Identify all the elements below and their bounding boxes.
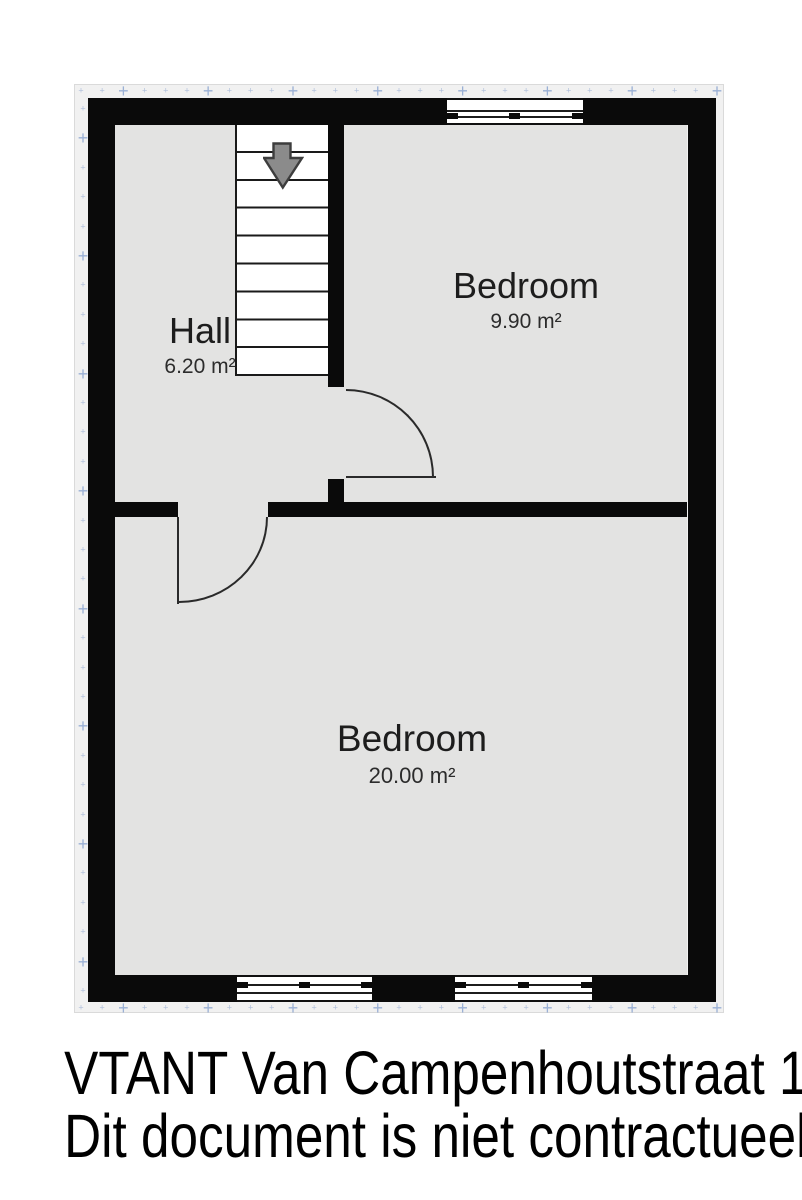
- window-bottom-right: [455, 975, 592, 1002]
- window-mullion-tick: [299, 982, 310, 988]
- window-glass-line: [237, 992, 372, 994]
- room-area: 20.00 m²: [337, 765, 487, 787]
- grid-marker: +: [269, 1004, 274, 1013]
- grid-marker: +: [80, 516, 85, 525]
- grid-marker: +: [80, 340, 85, 349]
- grid-marker: +: [80, 898, 85, 907]
- grid-marker: +: [227, 87, 232, 96]
- window-glass-line: [447, 110, 583, 112]
- wall-top-left: [88, 98, 447, 125]
- grid-marker: +: [80, 781, 85, 790]
- window-jamb-tick: [361, 982, 372, 988]
- grid-marker: +: [672, 1004, 677, 1013]
- caption-disclaimer: Dit document is niet contractueel: [64, 1105, 738, 1168]
- grid-marker: +: [693, 1004, 698, 1013]
- grid-marker: +: [78, 365, 89, 383]
- grid-marker: +: [78, 247, 89, 265]
- grid-marker: +: [80, 193, 85, 202]
- caption-address: VTANT Van Campenhoutstraat 13: [64, 1042, 738, 1105]
- grid-marker: +: [80, 546, 85, 555]
- grid-marker: +: [396, 1004, 401, 1013]
- grid-marker: +: [78, 129, 89, 147]
- grid-marker: +: [693, 87, 698, 96]
- grid-marker: +: [184, 87, 189, 96]
- grid-marker: +: [80, 575, 85, 584]
- wall-divider-left: [115, 502, 178, 517]
- grid-marker: +: [80, 634, 85, 643]
- grid-marker: +: [80, 751, 85, 760]
- grid-marker: +: [78, 1004, 83, 1013]
- grid-marker: +: [418, 1004, 423, 1013]
- grid-marker: +: [80, 222, 85, 231]
- room-name: Bedroom: [337, 720, 487, 757]
- caption: VTANT Van Campenhoutstraat 13 Dit docume…: [0, 1042, 802, 1169]
- grid-marker: +: [80, 928, 85, 937]
- grid-marker: +: [78, 600, 89, 618]
- grid-marker: +: [80, 810, 85, 819]
- window-jamb-tick: [237, 982, 248, 988]
- grid-marker: +: [333, 1004, 338, 1013]
- grid-marker: +: [354, 1004, 359, 1013]
- grid-marker: +: [587, 1004, 592, 1013]
- wall-divider-right: [268, 502, 687, 517]
- room-name: Bedroom: [453, 268, 599, 304]
- wall-bottom-right: [592, 975, 716, 1002]
- grid-marker: +: [312, 1004, 317, 1013]
- grid-marker: +: [184, 1004, 189, 1013]
- grid-marker: +: [396, 87, 401, 96]
- window-jamb-tick: [447, 113, 458, 119]
- room-name: Hall: [164, 313, 235, 349]
- grid-marker: +: [672, 87, 677, 96]
- window-jamb-tick: [581, 982, 592, 988]
- grid-marker: +: [80, 987, 85, 996]
- grid-marker: +: [78, 835, 89, 853]
- room-label-bedroom-top: Bedroom 9.90 m²: [453, 268, 599, 332]
- grid-marker: +: [651, 1004, 656, 1013]
- grid-marker: +: [587, 87, 592, 96]
- grid-marker: +: [80, 428, 85, 437]
- grid-marker: +: [248, 87, 253, 96]
- grid-marker: +: [481, 87, 486, 96]
- room-area: 6.20 m²: [164, 356, 235, 377]
- grid-marker: +: [80, 163, 85, 172]
- grid-marker: +: [142, 1004, 147, 1013]
- window-bottom-left: [237, 975, 372, 1002]
- grid-marker: +: [80, 105, 85, 114]
- grid-marker: +: [80, 310, 85, 319]
- room-label-bedroom-bottom: Bedroom 20.00 m²: [337, 720, 487, 787]
- grid-marker: +: [78, 717, 89, 735]
- wall-stairs-right: [328, 125, 344, 387]
- window-mullion-tick: [509, 113, 520, 119]
- grid-marker: +: [418, 87, 423, 96]
- window-glass-line: [455, 992, 592, 994]
- grid-marker: +: [651, 87, 656, 96]
- grid-marker: +: [227, 1004, 232, 1013]
- wall-bottom-left: [88, 975, 237, 1002]
- window-jamb-tick: [572, 113, 583, 119]
- grid-marker: +: [566, 87, 571, 96]
- grid-marker: +: [608, 87, 613, 96]
- grid-marker: +: [142, 87, 147, 96]
- grid-marker: +: [312, 87, 317, 96]
- window-top: [447, 98, 583, 125]
- grid-marker: +: [566, 1004, 571, 1013]
- wall-left: [88, 98, 115, 1002]
- door-leaf-bedroom-large: [177, 517, 179, 604]
- window-jamb-tick: [455, 982, 466, 988]
- grid-marker: +: [80, 457, 85, 466]
- grid-marker: +: [481, 1004, 486, 1013]
- grid-marker: +: [333, 87, 338, 96]
- grid-marker: +: [80, 869, 85, 878]
- grid-marker: +: [78, 953, 89, 971]
- stairs-down-arrow-icon: [263, 142, 304, 190]
- grid-marker: +: [502, 1004, 507, 1013]
- grid-marker: +: [248, 1004, 253, 1013]
- grid-marker: +: [608, 1004, 613, 1013]
- grid-marker: +: [80, 281, 85, 290]
- grid-marker: +: [80, 663, 85, 672]
- grid-marker: +: [354, 87, 359, 96]
- wall-right: [688, 98, 716, 1002]
- room-area: 9.90 m²: [453, 311, 599, 332]
- grid-marker: +: [524, 1004, 529, 1013]
- grid-marker: +: [163, 87, 168, 96]
- room-label-hall: Hall 6.20 m²: [164, 313, 235, 377]
- grid-marker: +: [163, 1004, 168, 1013]
- grid-marker: +: [439, 87, 444, 96]
- grid-marker: +: [524, 87, 529, 96]
- floorplan-page: ++++++++++++++++++++++++++++++++++++++++…: [0, 0, 802, 1200]
- grid-marker: +: [100, 87, 105, 96]
- grid-marker: +: [78, 87, 83, 96]
- grid-marker: +: [78, 482, 89, 500]
- wall-bottom-middle: [372, 975, 455, 1002]
- grid-marker: +: [80, 399, 85, 408]
- grid-marker: +: [100, 1004, 105, 1013]
- grid-marker: +: [439, 1004, 444, 1013]
- door-leaf-bedroom: [346, 476, 436, 478]
- grid-marker: +: [502, 87, 507, 96]
- grid-marker: +: [269, 87, 274, 96]
- grid-marker: +: [80, 693, 85, 702]
- window-mullion-tick: [518, 982, 529, 988]
